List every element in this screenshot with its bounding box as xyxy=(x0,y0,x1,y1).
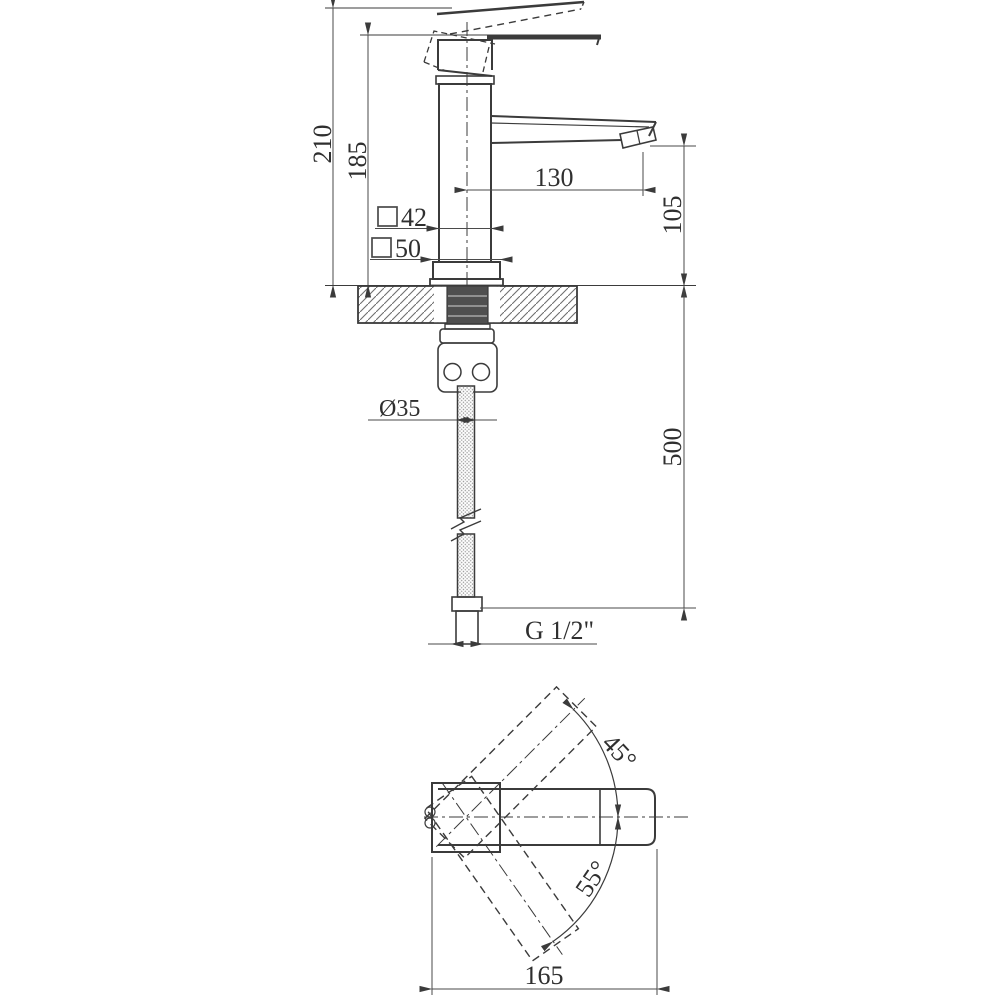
faucet-body xyxy=(439,84,491,262)
cap-collar xyxy=(436,76,494,84)
dim-45deg-label: 45° xyxy=(596,728,642,774)
spout-top-inner-edge xyxy=(491,123,649,127)
hose-lower xyxy=(458,534,475,597)
plan-detail-circle-bottom xyxy=(425,818,435,828)
fitting-nut xyxy=(452,597,482,611)
dim-165-label: 165 xyxy=(525,961,564,990)
dim-105-label: 105 xyxy=(658,196,687,235)
dim-50-label: 50 xyxy=(395,234,421,263)
spout-top-edge xyxy=(491,116,656,122)
handle-phantom-55 xyxy=(419,767,585,971)
bracket-hole-right xyxy=(473,364,490,381)
mounting-nut xyxy=(440,329,494,343)
front-view-dimensions xyxy=(333,8,696,644)
handle-phantom-45 xyxy=(417,678,605,866)
cap-outline xyxy=(438,40,492,70)
front-view xyxy=(325,2,696,644)
dim-185-label: 185 xyxy=(343,142,372,181)
fitting-body xyxy=(456,611,478,644)
hose-upper xyxy=(458,386,475,518)
bracket-hole-left xyxy=(444,364,461,381)
top-view xyxy=(417,678,690,995)
top-view-dimension-labels: 45° 55° 165 xyxy=(525,728,643,990)
lever-raised-bottom-edge xyxy=(450,9,581,34)
square-symbol-42 xyxy=(378,207,397,226)
dim-500-label: 500 xyxy=(658,428,687,467)
cap-phantom-dashed xyxy=(424,31,495,72)
square-symbol-50 xyxy=(372,238,391,257)
dim-35-label: Ø35 xyxy=(379,396,420,422)
technical-drawing: 210 185 130 105 500 42 50 Ø35 G 1/2" xyxy=(0,0,1000,1000)
dim-42-label: 42 xyxy=(401,203,427,232)
spout-underside xyxy=(491,140,622,143)
spout-plan-outline xyxy=(438,789,655,845)
spout-aerator-divider xyxy=(637,131,640,145)
faucet-dimension-drawing: 210 185 130 105 500 42 50 Ø35 G 1/2" xyxy=(0,0,1000,1000)
dim-g12-label: G 1/2" xyxy=(525,616,594,645)
dim-55deg-label: 55° xyxy=(569,856,613,902)
dim-130-label: 130 xyxy=(535,163,574,192)
dim-210-label: 210 xyxy=(308,125,337,164)
